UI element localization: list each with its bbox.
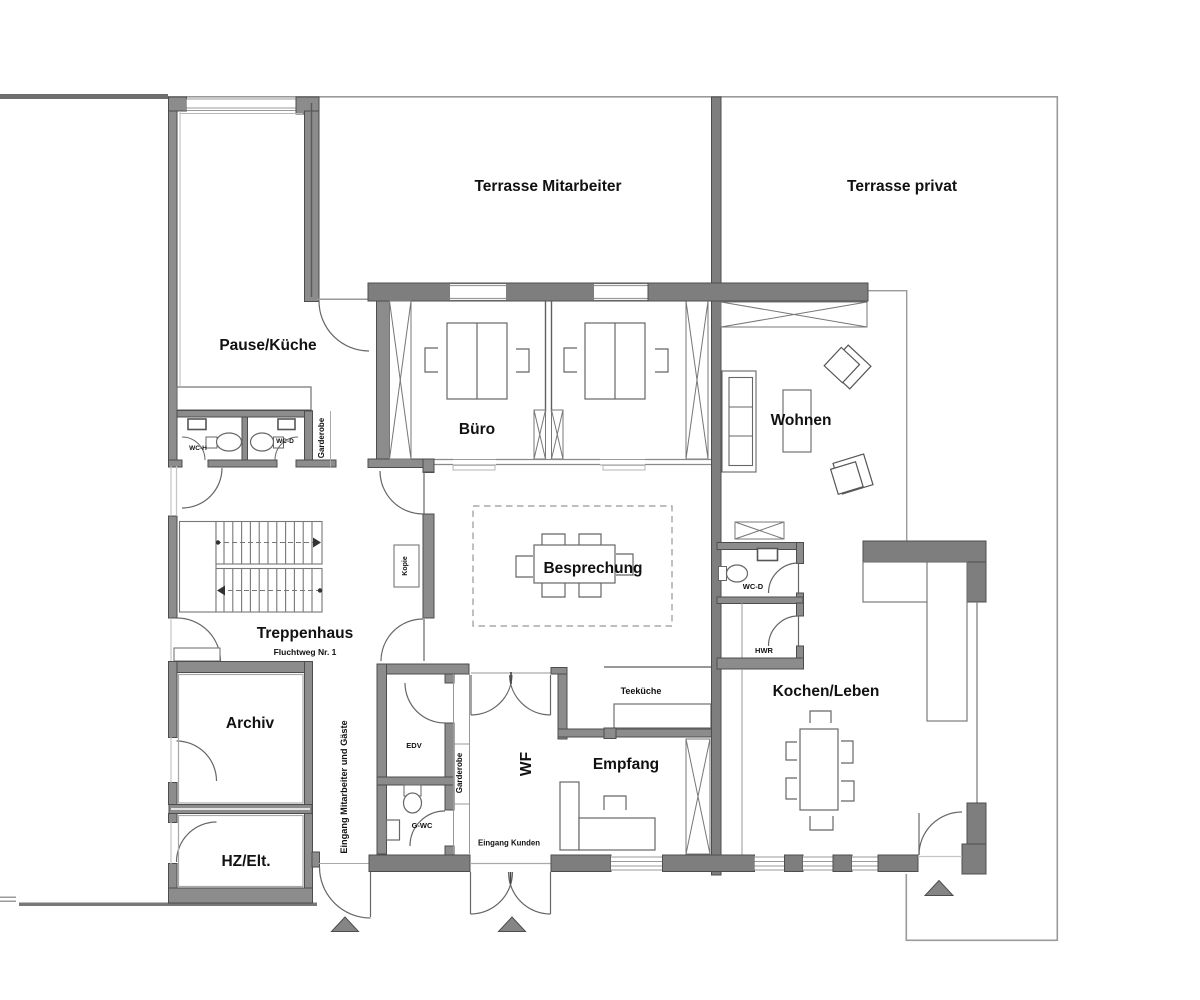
svg-text:Fluchtweg Nr. 1: Fluchtweg Nr. 1 xyxy=(274,647,337,657)
svg-text:Garderobe: Garderobe xyxy=(455,752,464,793)
svg-text:WC-D: WC-D xyxy=(276,438,294,445)
svg-text:WC-D: WC-D xyxy=(743,582,764,591)
svg-text:EDV: EDV xyxy=(406,741,421,750)
svg-text:Kopie: Kopie xyxy=(402,556,409,576)
svg-text:WF: WF xyxy=(518,752,535,776)
svg-text:Terrasse Mitarbeiter: Terrasse Mitarbeiter xyxy=(474,178,621,195)
svg-text:HWR: HWR xyxy=(755,646,773,655)
svg-text:G-WC: G-WC xyxy=(412,821,433,830)
svg-text:Archiv: Archiv xyxy=(226,715,275,732)
svg-text:Eingang Kunden: Eingang Kunden xyxy=(478,839,540,848)
svg-text:WC-H: WC-H xyxy=(189,445,207,452)
svg-text:HZ/Elt.: HZ/Elt. xyxy=(221,853,270,870)
svg-text:Büro: Büro xyxy=(459,421,495,438)
svg-text:Kochen/Leben: Kochen/Leben xyxy=(773,683,880,700)
svg-text:Empfang: Empfang xyxy=(593,756,659,773)
svg-text:Eingang Mitarbeiter und Gäste: Eingang Mitarbeiter und Gäste xyxy=(339,720,349,853)
svg-text:Teeküche: Teeküche xyxy=(621,686,662,696)
svg-text:Wohnen: Wohnen xyxy=(771,412,832,429)
svg-text:Garderobe: Garderobe xyxy=(317,417,326,458)
svg-text:Besprechung: Besprechung xyxy=(543,560,642,577)
svg-text:Terrasse privat: Terrasse privat xyxy=(847,178,957,195)
svg-text:Pause/Küche: Pause/Küche xyxy=(219,337,317,354)
svg-text:Treppenhaus: Treppenhaus xyxy=(257,625,353,642)
